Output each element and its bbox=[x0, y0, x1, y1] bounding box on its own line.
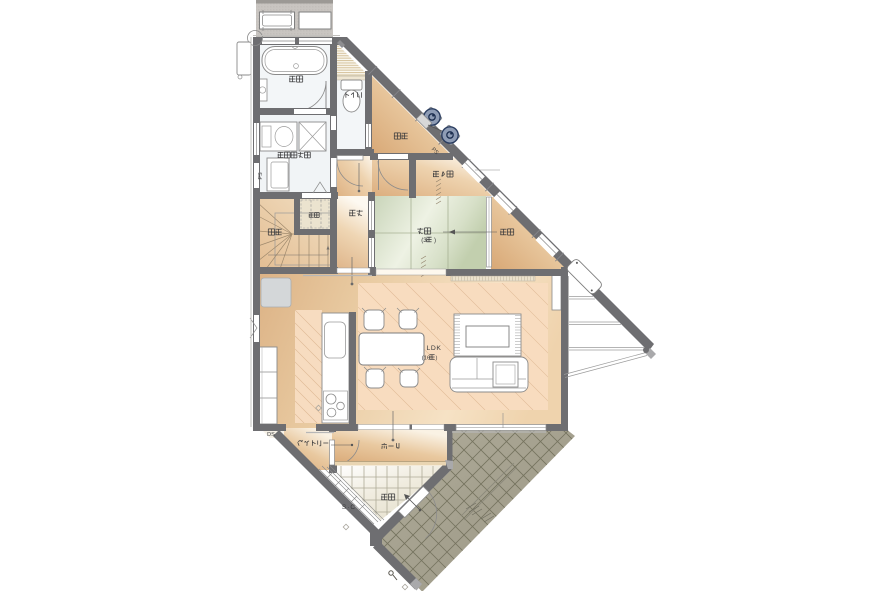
svg-text:(16: (16 bbox=[422, 356, 430, 362]
svg-text:): ) bbox=[434, 237, 436, 244]
svg-text:LDK: LDK bbox=[426, 345, 441, 352]
svg-text:): ) bbox=[436, 356, 438, 362]
svg-text:(3: (3 bbox=[421, 237, 427, 244]
svg-text:PS: PS bbox=[258, 172, 264, 180]
svg-text:S·C: S·C bbox=[342, 504, 356, 511]
svg-text:DS: DS bbox=[267, 432, 275, 438]
